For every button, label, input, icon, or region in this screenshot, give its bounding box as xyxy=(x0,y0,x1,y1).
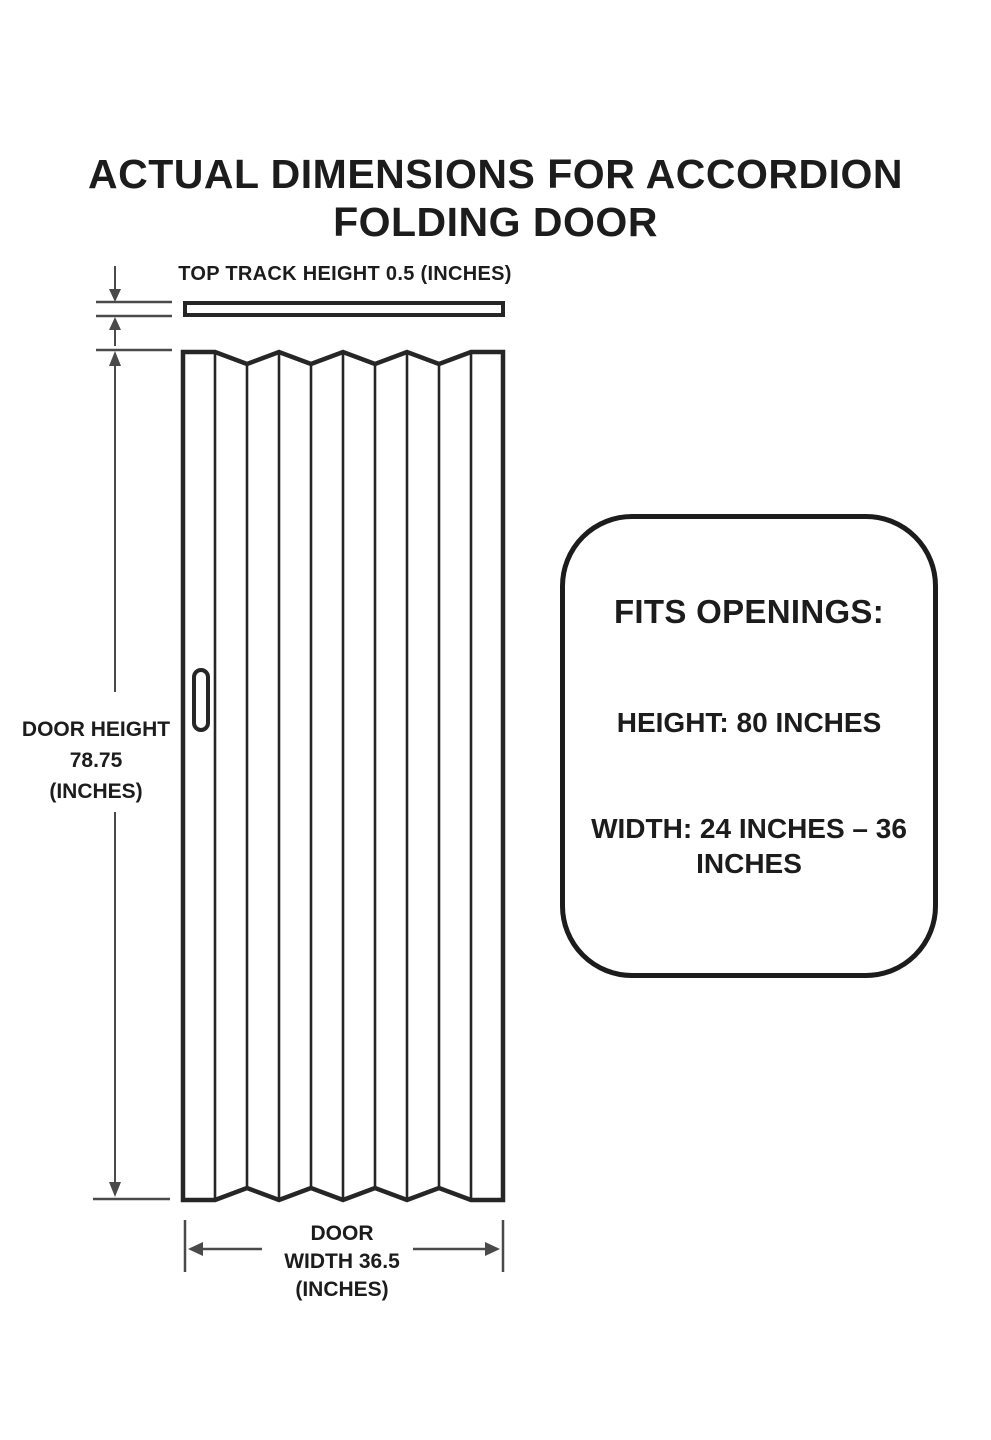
arrow-down-icon xyxy=(109,289,121,302)
fits-openings-width-line1: WIDTH: 24 INCHES – 36 xyxy=(565,811,933,846)
track-height-dimension xyxy=(96,266,172,350)
door-handle xyxy=(194,670,208,730)
fits-openings-width: WIDTH: 24 INCHES – 36 INCHES xyxy=(565,811,933,881)
fits-openings-heading: FITS OPENINGS: xyxy=(565,593,933,631)
door-height-value: 78.75 xyxy=(12,745,180,776)
door-width-name: DOOR xyxy=(262,1220,422,1248)
door-height-label: DOOR HEIGHT 78.75 (INCHES) xyxy=(12,714,180,807)
door-width-value: WIDTH 36.5 xyxy=(262,1248,422,1276)
arrow-down-icon xyxy=(109,1182,121,1197)
door-fold-lines xyxy=(215,352,471,1200)
fits-openings-box: FITS OPENINGS: HEIGHT: 80 INCHES WIDTH: … xyxy=(560,514,938,978)
fits-openings-width-line2: INCHES xyxy=(565,846,933,881)
arrow-left-icon xyxy=(188,1242,203,1256)
diagram-page: ACTUAL DIMENSIONS FOR ACCORDION FOLDING … xyxy=(0,0,991,1440)
top-track-shape xyxy=(185,303,503,315)
arrow-right-icon xyxy=(485,1242,500,1256)
fits-openings-height: HEIGHT: 80 INCHES xyxy=(565,707,933,739)
door-width-label: DOOR WIDTH 36.5 (INCHES) xyxy=(262,1220,422,1304)
door-height-name: DOOR HEIGHT xyxy=(12,714,180,745)
door-width-unit: (INCHES) xyxy=(262,1276,422,1304)
door-height-unit: (INCHES) xyxy=(12,776,180,807)
